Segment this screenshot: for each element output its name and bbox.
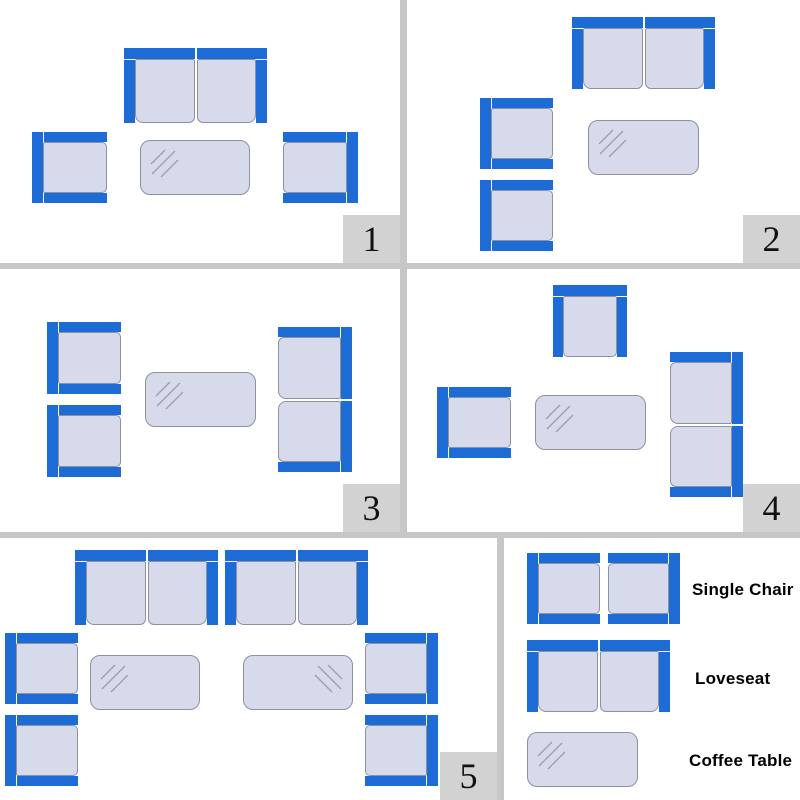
loveseat-back [148, 550, 219, 561]
loveseat [572, 17, 715, 89]
chair-arm [283, 193, 346, 203]
cushion [365, 725, 427, 776]
glass-glare-icon [95, 659, 135, 699]
single-chair [5, 633, 78, 704]
loveseat-back [732, 352, 743, 424]
loveseat-arm [124, 60, 135, 123]
chair-arm [283, 132, 346, 142]
chair-arm [553, 297, 563, 357]
cushion [58, 415, 121, 467]
loveseat-arm [207, 562, 218, 625]
panel-number-badge: 2 [743, 215, 800, 263]
loveseat-arm [704, 29, 715, 89]
cushion [670, 362, 732, 424]
loveseat-back [341, 401, 352, 473]
cushion [670, 426, 732, 488]
chair-back [32, 132, 43, 203]
coffee-table [243, 655, 353, 710]
chair-arm [608, 553, 668, 563]
chair-back [47, 322, 58, 394]
glass-glare-icon [532, 736, 572, 776]
chair-arm [449, 387, 511, 397]
chair-back [527, 553, 538, 624]
layout-panel-2: 2 [407, 0, 800, 263]
single-chair [32, 132, 107, 203]
loveseat-arm [527, 652, 538, 712]
coffee-table [588, 120, 699, 175]
chair-arm [365, 694, 426, 704]
cushion [538, 563, 600, 614]
loveseat-arm [659, 652, 670, 712]
loveseat-arm [225, 562, 236, 625]
loveseat [278, 327, 352, 472]
chair-back [5, 715, 16, 786]
cushion [491, 108, 553, 159]
chair-back [347, 132, 358, 203]
loveseat-arm [256, 60, 267, 123]
single-chair [283, 132, 358, 203]
single-chair [47, 322, 121, 394]
cushion [448, 397, 511, 448]
loveseat-arm [357, 562, 368, 625]
loveseat-back [124, 48, 195, 59]
cushion [197, 59, 257, 123]
cushion [283, 142, 347, 193]
single-chair [47, 405, 121, 477]
loveseat-back [298, 550, 369, 561]
single-chair [608, 553, 680, 624]
cushion [278, 401, 341, 463]
chair-arm [59, 405, 121, 415]
loveseat [75, 550, 218, 625]
glass-glare-icon [308, 659, 348, 699]
chair-arm [44, 132, 107, 142]
panel-number-badge: 4 [743, 484, 800, 532]
chair-arm [492, 241, 553, 251]
single-chair [480, 180, 553, 251]
chair-back [480, 98, 491, 169]
loveseat-arm [670, 487, 731, 497]
cushion [645, 28, 705, 89]
single-chair [480, 98, 553, 169]
legend-label-single-chair: Single Chair [692, 580, 794, 600]
chair-back [427, 715, 438, 786]
loveseat-back [600, 640, 671, 651]
loveseat-arm [278, 462, 340, 472]
panel-number-badge: 1 [343, 215, 400, 263]
single-chair [527, 553, 600, 624]
chair-arm [492, 180, 553, 190]
loveseat-back [341, 327, 352, 399]
legend-label-coffee-table: Coffee Table [689, 751, 792, 771]
loveseat-arm [572, 29, 583, 89]
cushion [86, 561, 146, 625]
chair-arm [59, 322, 121, 332]
chair-arm [17, 776, 78, 786]
chair-back [553, 285, 627, 296]
furniture-arrangement-diagram: 1 2 3 4 5 Single Chair Loveseat Coffee T… [0, 0, 800, 800]
chair-back [47, 405, 58, 477]
loveseat-back [645, 17, 716, 28]
panel-number-badge: 5 [440, 752, 497, 800]
chair-arm [608, 614, 668, 624]
chair-back [669, 553, 680, 624]
single-chair [437, 387, 511, 458]
chair-arm [539, 553, 600, 563]
cushion [16, 725, 78, 776]
chair-arm [59, 384, 121, 394]
cushion [58, 332, 121, 384]
coffee-table [90, 655, 200, 710]
chair-arm [617, 297, 627, 357]
layout-panel-4: 4 [407, 269, 800, 532]
loveseat-back [572, 17, 643, 28]
cushion [538, 651, 598, 712]
chair-arm [17, 715, 78, 725]
cushion [365, 643, 427, 694]
loveseat-back [197, 48, 268, 59]
chair-arm [492, 98, 553, 108]
loveseat-back [527, 640, 598, 651]
loveseat [225, 550, 368, 625]
layout-panel-3: 3 [0, 269, 400, 532]
layout-panel-1: 1 [0, 0, 400, 263]
chair-arm [17, 633, 78, 643]
panel-number-badge: 3 [343, 484, 400, 532]
chair-arm [17, 694, 78, 704]
loveseat-arm [278, 327, 340, 337]
loveseat-back [225, 550, 296, 561]
glass-glare-icon [145, 144, 185, 184]
coffee-table [535, 395, 646, 450]
chair-arm [44, 193, 107, 203]
glass-glare-icon [150, 376, 190, 416]
chair-back [437, 387, 448, 458]
coffee-table [527, 732, 638, 787]
chair-arm [539, 614, 600, 624]
chair-arm [449, 448, 511, 458]
loveseat-arm [75, 562, 86, 625]
loveseat-arm [670, 352, 731, 362]
single-chair [5, 715, 78, 786]
chair-arm [59, 467, 121, 477]
loveseat-back [732, 426, 743, 498]
chair-arm [365, 633, 426, 643]
coffee-table [145, 372, 256, 427]
single-chair [553, 285, 627, 357]
legend-label-loveseat: Loveseat [695, 669, 770, 689]
loveseat [124, 48, 267, 123]
cushion [600, 651, 660, 712]
loveseat [527, 640, 670, 712]
cushion [148, 561, 208, 625]
cushion [236, 561, 296, 625]
cushion [298, 561, 358, 625]
loveseat-back [75, 550, 146, 561]
layout-panel-5: 5 [0, 538, 497, 800]
coffee-table [140, 140, 250, 195]
chair-back [480, 180, 491, 251]
chair-arm [365, 715, 426, 725]
chair-arm [365, 776, 426, 786]
loveseat [670, 352, 743, 497]
cushion [608, 563, 669, 614]
chair-back [5, 633, 16, 704]
glass-glare-icon [593, 124, 633, 164]
cushion [491, 190, 553, 241]
cushion [43, 142, 107, 193]
legend-panel: Single Chair Loveseat Coffee Table [504, 538, 800, 800]
cushion [135, 59, 195, 123]
chair-back [427, 633, 438, 704]
cushion [278, 337, 341, 399]
single-chair [365, 633, 438, 704]
cushion [563, 296, 617, 357]
single-chair [365, 715, 438, 786]
cushion [16, 643, 78, 694]
cushion [583, 28, 643, 89]
chair-arm [492, 159, 553, 169]
glass-glare-icon [540, 399, 580, 439]
